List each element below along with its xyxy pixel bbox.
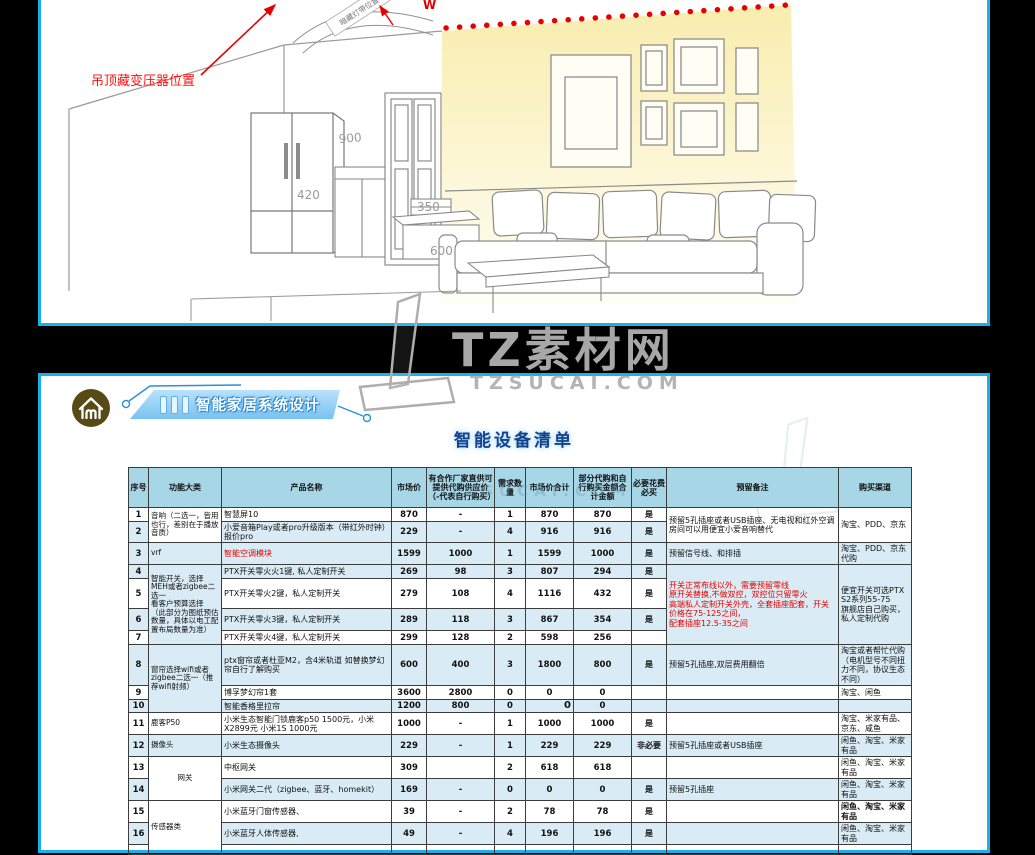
cell-product: 博孚梦幻帘1套 — [222, 686, 392, 700]
cell-must: 是 — [632, 713, 667, 735]
col-no: 序号 — [129, 468, 149, 508]
cell-note — [667, 823, 839, 845]
cell-buy-total: 196 — [574, 823, 632, 845]
table-row: 16 小米蓝牙人体传感器, 49 - 4 196 196 是 闲鱼、淘宝、米家有… — [129, 823, 912, 845]
cell-channel: 淘宝、闲鱼 — [839, 686, 912, 700]
cell-buy-total: 354 — [574, 609, 632, 631]
cell-must: 是 — [632, 579, 667, 609]
room-design-image-panel: 暗藏灯带位置 吊顶藏变压器位置 W 900 420 350 600 — [38, 0, 990, 326]
cell-no: 3 — [129, 543, 149, 565]
callout-arrow — [201, 5, 275, 75]
cell-qty: 2 — [495, 631, 526, 645]
cell-qty: 3 — [495, 645, 526, 686]
cell-category: 智能开关，选择MEH或者zigbee二选一 看客户预算选择 （此部分为图纸预估数… — [149, 565, 222, 645]
table-row: 10 智能香格里拉帘 1200 800 0 0 0 — [129, 700, 912, 713]
cell-price: 1000 — [392, 713, 427, 735]
cell-channel: 闲鱼、淘宝、米家有品 — [839, 801, 912, 823]
room-sketch: 暗藏灯带位置 吊顶藏变压器位置 W 900 420 350 600 — [41, 0, 987, 323]
cell-total: 867 — [526, 609, 574, 631]
small-red-arrow — [380, 6, 393, 25]
cell-channel — [839, 845, 912, 855]
cell-product: PTX开关零火3键，私人定制开关 — [222, 609, 392, 631]
cell-supply: - — [427, 823, 495, 845]
cell-price: 269 — [392, 565, 427, 579]
cell-no: 8 — [129, 645, 149, 686]
cell-product: 智能空调模块 — [222, 543, 392, 565]
device-list-panel: 智能家居系统设计 智能设备清单 TZSUCAI.COM 序号 功能大类 产品名称… — [38, 373, 990, 853]
svg-text:600: 600 — [430, 244, 453, 258]
cell-qty: 1 — [495, 508, 526, 522]
cell-must: 是 — [632, 645, 667, 686]
cell-buy-total: 916 — [574, 522, 632, 543]
cell-qty: 4 — [495, 579, 526, 609]
cell-supply: 800 — [427, 700, 495, 713]
cell-category: vrf — [149, 543, 222, 565]
callout-label: 吊顶藏变压器位置 — [91, 73, 195, 89]
cell-note — [667, 700, 839, 713]
cell-product: PTX开关零火4键，私人定制开关 — [222, 631, 392, 645]
cell-supply: - — [427, 735, 495, 757]
table-row: 13 网关 中枢网关 309 2 618 618 闲鱼、淘宝、米家有品 — [129, 757, 912, 779]
cell-qty: 3 — [495, 609, 526, 631]
cell-note — [667, 801, 839, 823]
cell-no: 13 — [129, 757, 149, 779]
cell-channel: 闲鱼、淘宝、米家有品 — [839, 757, 912, 779]
col-note: 预留备注 — [667, 468, 839, 508]
cell-no — [129, 845, 149, 855]
cabinet — [335, 167, 389, 257]
cell-buy-total: 432 — [574, 579, 632, 609]
cell-category: 网关 — [149, 757, 222, 801]
cell-supply: 400 — [427, 645, 495, 686]
cell-qty: 2 — [495, 801, 526, 823]
col-product: 产品名称 — [222, 468, 392, 508]
cell-price: 1200 — [392, 700, 427, 713]
cell-must — [632, 686, 667, 700]
cell-product: 智能香格里拉帘 — [222, 700, 392, 713]
cell-product — [222, 845, 392, 855]
watermark-subtitle: TZSUCAI.COM — [470, 372, 684, 394]
cell-no: 4 — [129, 565, 149, 579]
watermark-title: TZ素材网 — [452, 314, 675, 380]
table-row: 4 智能开关，选择MEH或者zigbee二选一 看客户预算选择 （此部分为图纸预… — [129, 565, 912, 579]
cell-buy-total: 1000 — [574, 713, 632, 735]
cell-product: 小米生态摄像头 — [222, 735, 392, 757]
cell-buy-total: 0 — [574, 779, 632, 801]
table-row: 1 音响（二选一，皆用也行，差别在于播放音质） 智慧屏10 870 - 1 87… — [129, 508, 912, 522]
cell-price: 279 — [392, 579, 427, 609]
cell-price: 1599 — [392, 543, 427, 565]
table-row: 12 摄像头 小米生态摄像头 229 - 1 229 229 非必要 预留5孔插… — [129, 735, 912, 757]
cell-buy-total: 78 — [574, 801, 632, 823]
w-label: W — [423, 0, 436, 12]
cell-no: 12 — [129, 735, 149, 757]
cell-note: 开关正常布线以外，需要预留零线 原开关替换,不做双控，双控位只留零火 高端私人定… — [667, 565, 839, 645]
cell-qty — [495, 845, 526, 855]
cell-must — [632, 757, 667, 779]
cell-price: 39 — [392, 801, 427, 823]
cell-price: 309 — [392, 757, 427, 779]
col-channel: 购买渠道 — [839, 468, 912, 508]
cell-total: 1800 — [526, 645, 574, 686]
cell-note — [667, 686, 839, 700]
cell-total: 1599 — [526, 543, 574, 565]
cell-note: 预留5孔插座或者USB插座 — [667, 735, 839, 757]
cell-supply: 98 — [427, 565, 495, 579]
cell-buy-total: 800 — [574, 645, 632, 686]
cell-qty: 0 — [495, 779, 526, 801]
col-price: 市场价 — [392, 468, 427, 508]
cell-total: 78 — [526, 801, 574, 823]
cell-product: 中枢网关 — [222, 757, 392, 779]
cell-price — [392, 845, 427, 855]
cell-total: 618 — [526, 757, 574, 779]
cell-qty: 0 — [495, 700, 526, 713]
cell-no: 5 — [129, 579, 149, 609]
cell-product: 小米蓝牙门窗传感器、 — [222, 801, 392, 823]
watermark-ghost-text: TZSUCAI.COM — [449, 482, 632, 500]
cell-supply: 2800 — [427, 686, 495, 700]
cell-product: 智慧屏10 — [222, 508, 392, 522]
device-table-wrap: 序号 功能大类 产品名称 市场价 有合作厂家直供可提供代购供应价（-代表自行购买… — [128, 467, 912, 855]
cell-supply: - — [427, 801, 495, 823]
device-table: 序号 功能大类 产品名称 市场价 有合作厂家直供可提供代购供应价（-代表自行购买… — [128, 467, 912, 855]
cell-channel: 闲鱼、淘宝、米家有品 — [839, 779, 912, 801]
cell-buy-total — [574, 845, 632, 855]
cell-no: 11 — [129, 713, 149, 735]
cell-buy-total: 256 — [574, 631, 632, 645]
cell-channel: 淘宝、PDD、京东 — [839, 508, 912, 543]
cell-price: 289 — [392, 609, 427, 631]
cell-total: 196 — [526, 823, 574, 845]
cell-note — [667, 757, 839, 779]
cell-channel: 淘宝或者帮忙代购 （电机型号不同扭力不同，协议生态不同） — [839, 645, 912, 686]
cell-total: 0 — [526, 700, 574, 713]
svg-text:420: 420 — [297, 188, 320, 202]
cell-must: 是 — [632, 801, 667, 823]
table-row: 8 窗帘选择wifi或者zigbee二选一（推荐wifi射频） ptx窗帘或者杜… — [129, 645, 912, 686]
table-row: 11 鹿客P50 小米生态智能门锁鹿客p50 1500元，小米X2899元 小米… — [129, 713, 912, 735]
cell-buy-total: 0 — [574, 686, 632, 700]
cell-price: 600 — [392, 645, 427, 686]
svg-text:900: 900 — [338, 130, 362, 146]
cell-channel: 闲鱼、淘宝、米家有品 — [839, 735, 912, 757]
cell-total: 229 — [526, 735, 574, 757]
cell-price: 299 — [392, 631, 427, 645]
cell-must: 是 — [632, 522, 667, 543]
table-row-partial — [129, 845, 912, 855]
table-row: 15 传感器类 小米蓝牙门窗传感器、 39 - 2 78 78 是 闲鱼、淘宝、… — [129, 801, 912, 823]
cell-price: 870 — [392, 508, 427, 522]
banner-bars-icon — [160, 396, 189, 414]
cell-total: 598 — [526, 631, 574, 645]
cell-channel: 便宜开关可选PTX S2系列55-75 旗舰店自己购买，私人定制代购 — [839, 565, 912, 645]
cell-qty: 1 — [495, 735, 526, 757]
cell-category: 传感器类 — [149, 801, 222, 855]
cell-must: 是 — [632, 609, 667, 631]
cell-product: 小米网关二代（zigbee、蓝牙、homekit） — [222, 779, 392, 801]
table-row: 14 小米网关二代（zigbee、蓝牙、homekit） 169 - 0 0 0… — [129, 779, 912, 801]
cell-price: 49 — [392, 823, 427, 845]
cell-must — [632, 631, 667, 645]
cell-total: 916 — [526, 522, 574, 543]
cell-supply — [427, 845, 495, 855]
table-row: 9 博孚梦幻帘1套 3600 2800 0 0 0 淘宝、闲鱼 — [129, 686, 912, 700]
cell-no: 7 — [129, 631, 149, 645]
table-row: 3 vrf 智能空调模块 1599 1000 1 1599 1000 是 预留信… — [129, 543, 912, 565]
cell-note — [667, 713, 839, 735]
cell-channel — [839, 700, 912, 713]
cell-buy-total: 870 — [574, 508, 632, 522]
cell-total: 870 — [526, 508, 574, 522]
cell-must: 非必要 — [632, 735, 667, 757]
cell-supply: - — [427, 779, 495, 801]
cell-must — [632, 700, 667, 713]
cell-no: 14 — [129, 779, 149, 801]
cell-supply: - — [427, 508, 495, 522]
cell-channel: 淘宝、PDD、京东 代购 — [839, 543, 912, 565]
cell-note: 预留5孔插座,双层费用翻倍 — [667, 645, 839, 686]
cell-supply: 128 — [427, 631, 495, 645]
cell-category: 音响（二选一，皆用也行，差别在于播放音质） — [149, 508, 222, 543]
cell-supply: - — [427, 522, 495, 543]
cell-must: 是 — [632, 779, 667, 801]
cell-no: 10 — [129, 700, 149, 713]
cell-qty: 4 — [495, 823, 526, 845]
cell-qty: 1 — [495, 713, 526, 735]
cell-product: 小米蓝牙人体传感器, — [222, 823, 392, 845]
strip-label: 暗藏灯带位置 — [326, 0, 392, 36]
cell-buy-total: 0 — [574, 700, 632, 713]
cell-channel: 淘宝、米家有品、京东、咸鱼 — [839, 713, 912, 735]
cell-no: 15 — [129, 801, 149, 823]
cell-total: 1116 — [526, 579, 574, 609]
banner-title: 智能家居系统设计 — [196, 394, 320, 415]
cell-product: 小米生态智能门锁鹿客p50 1500元，小米X2899元 小米1S 1000元 — [222, 713, 392, 735]
col-category: 功能大类 — [149, 468, 222, 508]
cell-no: 6 — [129, 609, 149, 631]
cell-buy-total: 1000 — [574, 543, 632, 565]
cell-buy-total: 294 — [574, 565, 632, 579]
cell-must: 是 — [632, 565, 667, 579]
cell-must: 是 — [632, 508, 667, 522]
cell-supply: 118 — [427, 609, 495, 631]
cell-note — [667, 845, 839, 855]
cell-supply — [427, 757, 495, 779]
cell-total: 0 — [526, 779, 574, 801]
cell-qty: 4 — [495, 522, 526, 543]
cell-category: 鹿客P50 — [149, 713, 222, 735]
cell-buy-total: 229 — [574, 735, 632, 757]
cell-qty: 0 — [495, 686, 526, 700]
fridge — [251, 113, 344, 253]
cell-note: 预留5孔插座或者USB插座、无电视和红外空调房间可以用便宜小爱音响替代 — [667, 508, 839, 543]
cell-no: 9 — [129, 686, 149, 700]
cell-product: PTX开关零火2键，私人定制开关 — [222, 579, 392, 609]
cell-product: ptx窗帘或者杜亚M2，含4米轨道 如替换梦幻帘自行了解购买 — [222, 645, 392, 686]
cell-total: 0 — [526, 686, 574, 700]
col-must: 必要花费必买 — [632, 468, 667, 508]
svg-text:350: 350 — [417, 200, 440, 214]
cell-price: 229 — [392, 522, 427, 543]
cell-must: 是 — [632, 543, 667, 565]
cell-note: 预留信号线、和排插 — [667, 543, 839, 565]
cell-qty: 3 — [495, 565, 526, 579]
cell-category: 摄像头 — [149, 735, 222, 757]
cell-no: 16 — [129, 823, 149, 845]
banner: 智能家居系统设计 — [130, 390, 340, 419]
cell-must — [632, 845, 667, 855]
cell-note: 预留5孔插座 — [667, 779, 839, 801]
cell-supply: 1000 — [427, 543, 495, 565]
cell-qty: 2 — [495, 757, 526, 779]
cell-product: 小爱音箱Play或者pro升级版本（带红外时钟）报价pro — [222, 522, 392, 543]
cell-no: 1 — [129, 508, 149, 522]
cell-product: PTX开关零火火1键, 私人定制开关 — [222, 565, 392, 579]
cell-qty: 1 — [495, 543, 526, 565]
cell-price: 3600 — [392, 686, 427, 700]
cell-category: 窗帘选择wifi或者zigbee二选一（推荐wifi射频） — [149, 645, 222, 713]
cell-total — [526, 845, 574, 855]
cell-no: 2 — [129, 522, 149, 543]
cell-supply: - — [427, 713, 495, 735]
cell-buy-total: 618 — [574, 757, 632, 779]
cell-total: 1000 — [526, 713, 574, 735]
cell-supply: 108 — [427, 579, 495, 609]
cell-channel: 闲鱼、淘宝、米家有品 — [839, 823, 912, 845]
cell-must: 是 — [632, 823, 667, 845]
cell-price: 229 — [392, 735, 427, 757]
cell-total: 807 — [526, 565, 574, 579]
cell-price: 169 — [392, 779, 427, 801]
